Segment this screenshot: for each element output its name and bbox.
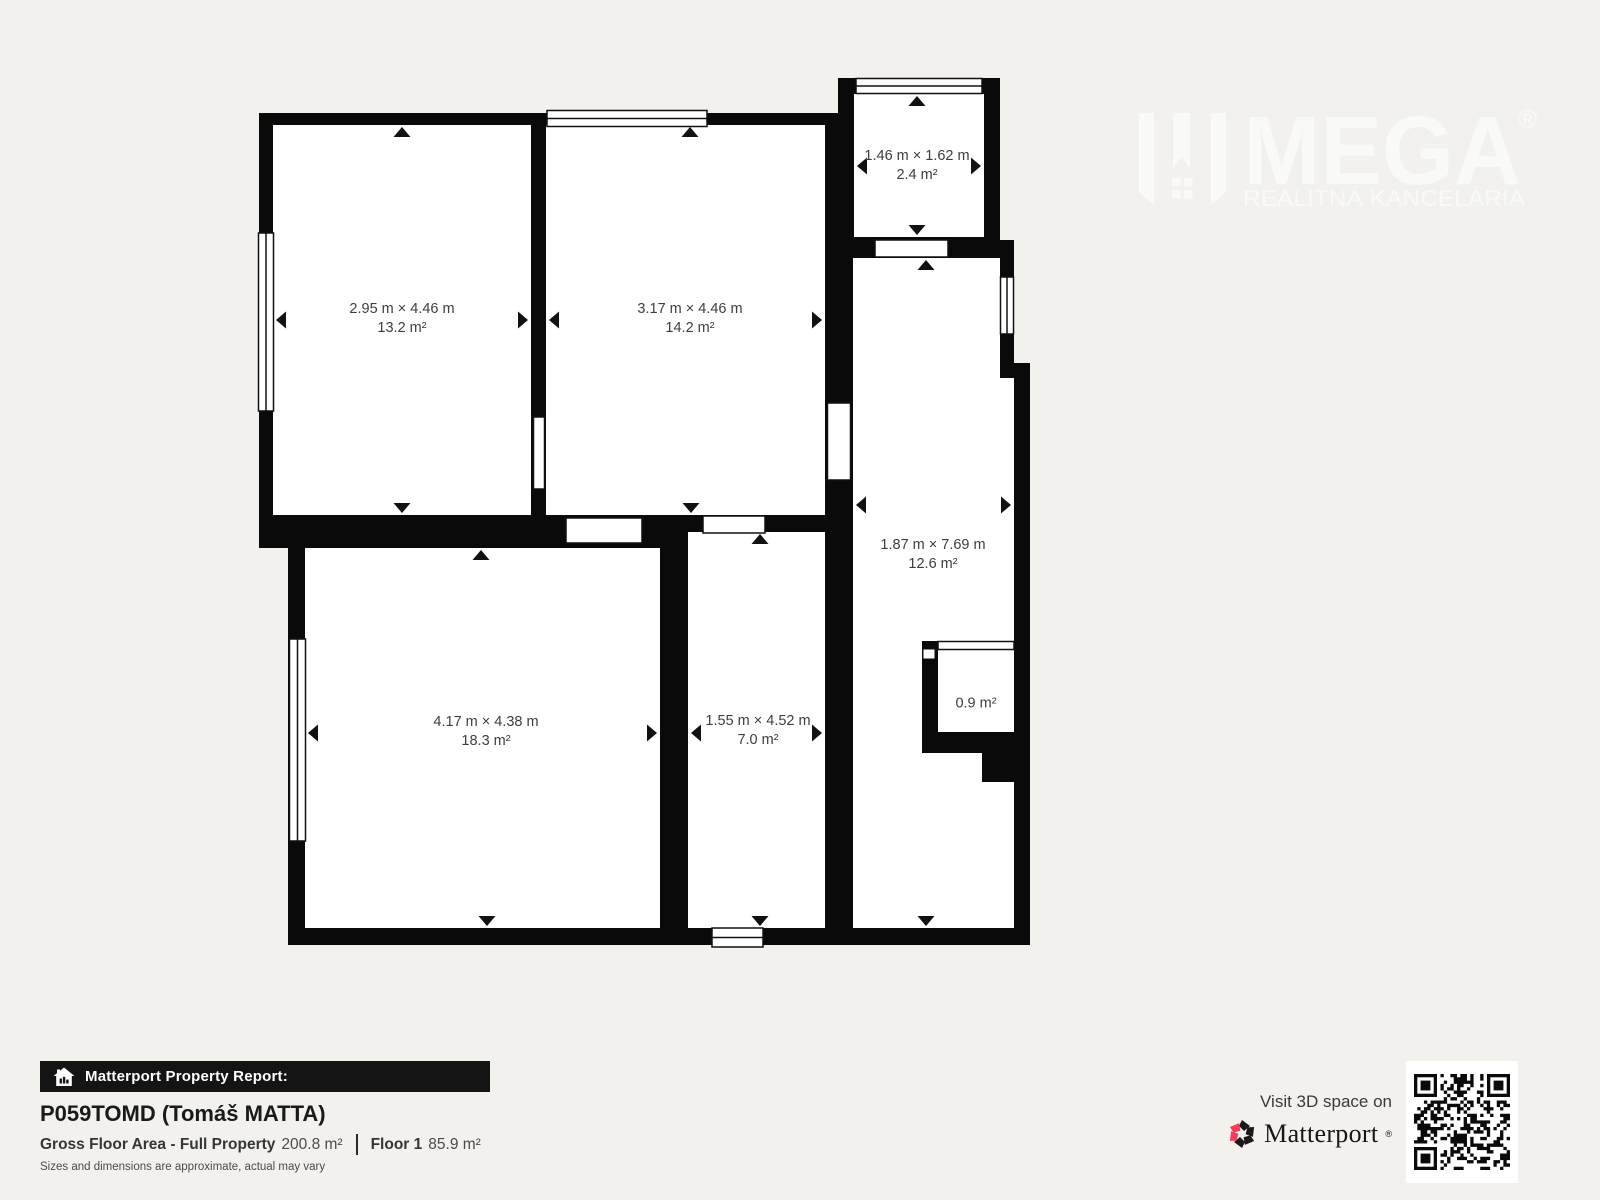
house-icon: [53, 1067, 75, 1087]
matterport-wordmark: Matterport: [1264, 1119, 1378, 1149]
room-dims: 1.87 m × 7.69 m: [880, 536, 985, 555]
room-label-13-2: 2.95 m × 4.46 m 13.2 m²: [349, 300, 454, 338]
room-label-14-2: 3.17 m × 4.46 m 14.2 m²: [637, 300, 742, 338]
mega-registered-mark: ®: [1518, 104, 1537, 134]
room-floors: [273, 94, 1014, 928]
mega-logo-icon: [1139, 113, 1226, 205]
qr-code-svg: [1414, 1074, 1510, 1170]
room-area: 13.2 m²: [349, 319, 454, 338]
room-label-12-6: 1.87 m × 7.69 m 12.6 m²: [880, 536, 985, 574]
room-area: 2.4 m²: [864, 166, 969, 185]
matterport-promo: Visit 3D space on Matterport ®: [1140, 1092, 1392, 1154]
room-area: 7.0 m²: [705, 731, 810, 750]
room-area: 0.9 m²: [955, 695, 996, 714]
report-disclaimer: Sizes and dimensions are approximate, ac…: [40, 1161, 325, 1173]
visit-3d-text: Visit 3D space on: [1140, 1092, 1392, 1112]
room-label-2-4: 1.46 m × 1.62 m 2.4 m²: [864, 147, 969, 185]
mega-tagline: REALITNÁ KANCELÁRIA: [1243, 185, 1526, 211]
closet-floor: [938, 650, 1014, 732]
room-dims: 4.17 m × 4.38 m: [433, 713, 538, 732]
floor-value: 85.9 m²: [428, 1136, 481, 1154]
report-banner: Matterport Property Report:: [40, 1061, 490, 1092]
report-info-row: Gross Floor Area - Full Property 200.8 m…: [40, 1134, 481, 1155]
room-label-0-9: 0.9 m²: [955, 695, 996, 714]
floor-plan: MEGA ® REALITNÁ KANCELÁRIA: [0, 0, 1600, 1200]
report-title: P059TOMD (Tomáš MATTA): [40, 1101, 326, 1127]
matterport-logo: Matterport ®: [1227, 1119, 1392, 1149]
matterport-registered-mark: ®: [1385, 1129, 1392, 1139]
divider: [356, 1134, 358, 1155]
room-area: 14.2 m²: [637, 319, 742, 338]
room-dims: 3.17 m × 4.46 m: [637, 300, 742, 319]
gross-area-value: 200.8 m²: [281, 1136, 342, 1154]
room-dims: 1.46 m × 1.62 m: [864, 147, 969, 166]
room-label-7-0: 1.55 m × 4.52 m 7.0 m²: [705, 712, 810, 750]
gross-area-label: Gross Floor Area - Full Property: [40, 1136, 275, 1154]
room-label-18-3: 4.17 m × 4.38 m 18.3 m²: [433, 713, 538, 751]
room-area: 18.3 m²: [433, 732, 538, 751]
room-dims: 2.95 m × 4.46 m: [349, 300, 454, 319]
floor-label: Floor 1: [371, 1136, 423, 1154]
qr-code: [1406, 1061, 1518, 1183]
room-area: 12.6 m²: [880, 555, 985, 574]
mega-logo: MEGA ® REALITNÁ KANCELÁRIA: [1139, 96, 1537, 211]
room-dims: 1.55 m × 4.52 m: [705, 712, 810, 731]
report-banner-label: Matterport Property Report:: [85, 1068, 288, 1085]
matterport-pinwheel-icon: [1227, 1119, 1257, 1149]
property-report-page: MEGA ® REALITNÁ KANCELÁRIA: [0, 0, 1600, 1200]
